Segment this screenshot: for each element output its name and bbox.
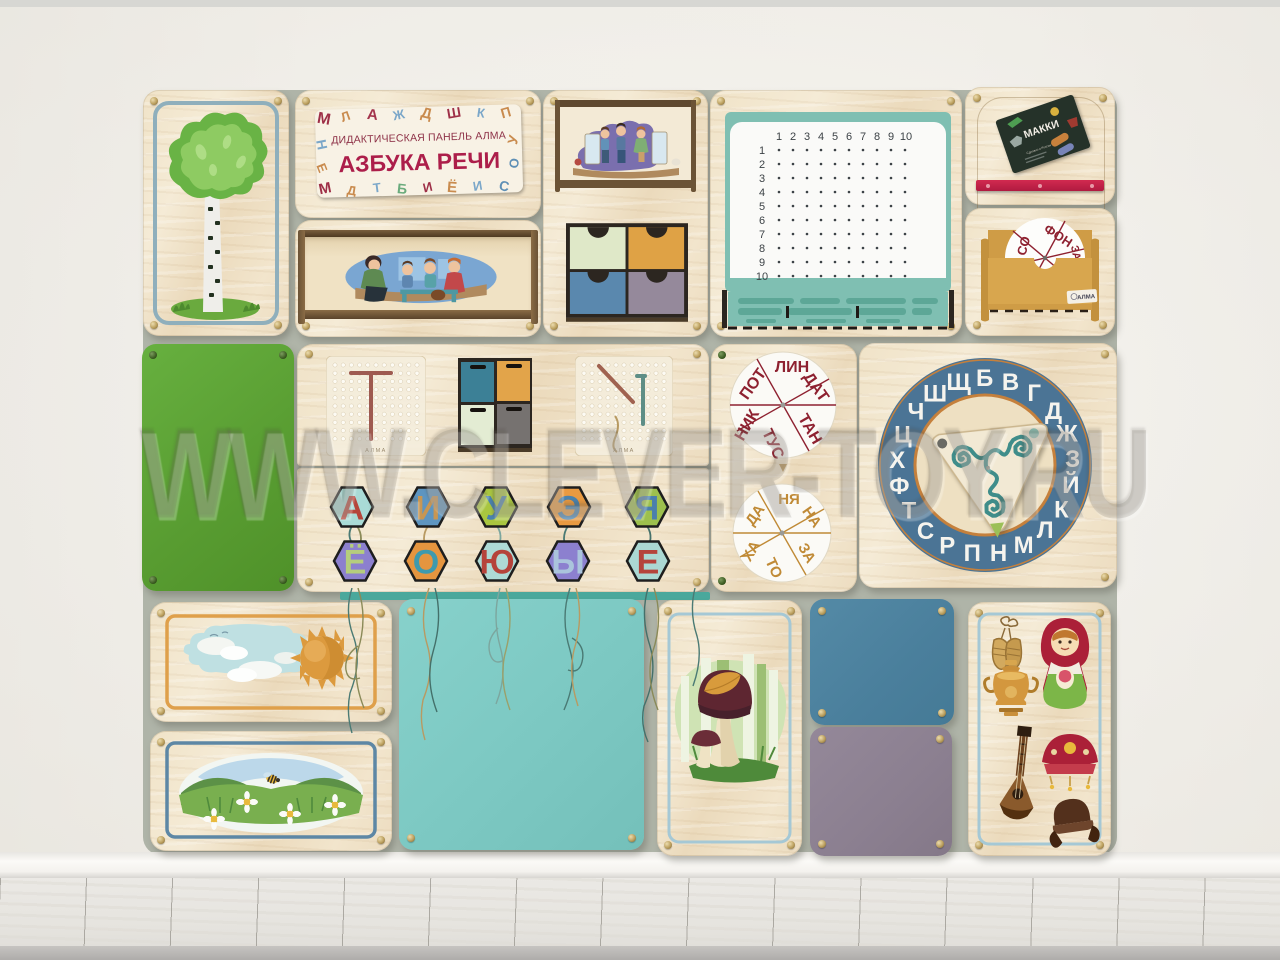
svg-text:Б: Б	[976, 365, 993, 392]
svg-text:7: 7	[860, 131, 866, 143]
svg-text:Д: Д	[346, 182, 358, 197]
svg-text:П: П	[499, 104, 513, 121]
svg-text:Ё: Ё	[344, 544, 367, 582]
svg-text:10: 10	[900, 131, 912, 143]
svg-text:Н: Н	[315, 138, 331, 151]
svg-text:4: 4	[759, 187, 765, 199]
svg-text:8: 8	[759, 243, 765, 255]
svg-text:Т: Т	[372, 180, 382, 196]
svg-text:5: 5	[759, 201, 765, 213]
svg-text:Е: Е	[315, 161, 331, 175]
svg-text:М: М	[316, 110, 332, 129]
svg-text:Е: Е	[637, 544, 660, 582]
svg-text:9: 9	[759, 257, 765, 269]
svg-text:И: И	[421, 179, 434, 196]
svg-text:3: 3	[804, 131, 810, 143]
svg-text:9: 9	[888, 131, 894, 143]
svg-text:10: 10	[756, 271, 768, 283]
svg-text:В: В	[1002, 369, 1019, 396]
svg-text:6: 6	[759, 215, 765, 227]
svg-text:Л: Л	[339, 108, 353, 125]
svg-text:С: С	[498, 177, 511, 195]
svg-text:ЛИН: ЛИН	[775, 359, 809, 376]
svg-text:АЗБУКА РЕЧИ: АЗБУКА РЕЧИ	[338, 147, 500, 178]
svg-text:1: 1	[776, 131, 782, 143]
svg-text:Сделано в России: Сделано в России	[1026, 143, 1052, 155]
svg-text:О: О	[413, 544, 439, 582]
svg-text:О: О	[506, 157, 522, 169]
svg-text:Ё: Ё	[446, 179, 457, 197]
svg-text:1: 1	[759, 145, 765, 157]
svg-text:У: У	[504, 133, 522, 145]
svg-text:Ю: Ю	[479, 544, 514, 582]
svg-text:3: 3	[759, 173, 765, 185]
svg-text:ДИДАКТИЧЕСКАЯ ПАНЕЛЬ АЛМА: ДИДАКТИЧЕСКАЯ ПАНЕЛЬ АЛМА	[331, 130, 506, 147]
svg-text:Ш: Ш	[446, 104, 463, 122]
svg-text:М: М	[317, 179, 333, 198]
svg-text:Д: Д	[419, 104, 433, 123]
svg-text:К: К	[476, 105, 486, 121]
svg-text:5: 5	[832, 131, 838, 143]
svg-text:7: 7	[759, 229, 765, 241]
svg-text:6: 6	[846, 131, 852, 143]
svg-text:МАККИ: МАККИ	[1023, 119, 1061, 141]
svg-text:Ж: Ж	[390, 106, 406, 123]
svg-text:И: И	[472, 178, 484, 194]
svg-text:Б: Б	[396, 180, 408, 197]
svg-text:Ы: Ы	[551, 544, 584, 582]
svg-text:2: 2	[790, 131, 796, 143]
svg-text:8: 8	[874, 131, 880, 143]
svg-text:4: 4	[818, 131, 824, 143]
svg-text:А: А	[366, 106, 379, 124]
svg-text:Щ: Щ	[946, 369, 971, 396]
svg-text:2: 2	[759, 159, 765, 171]
